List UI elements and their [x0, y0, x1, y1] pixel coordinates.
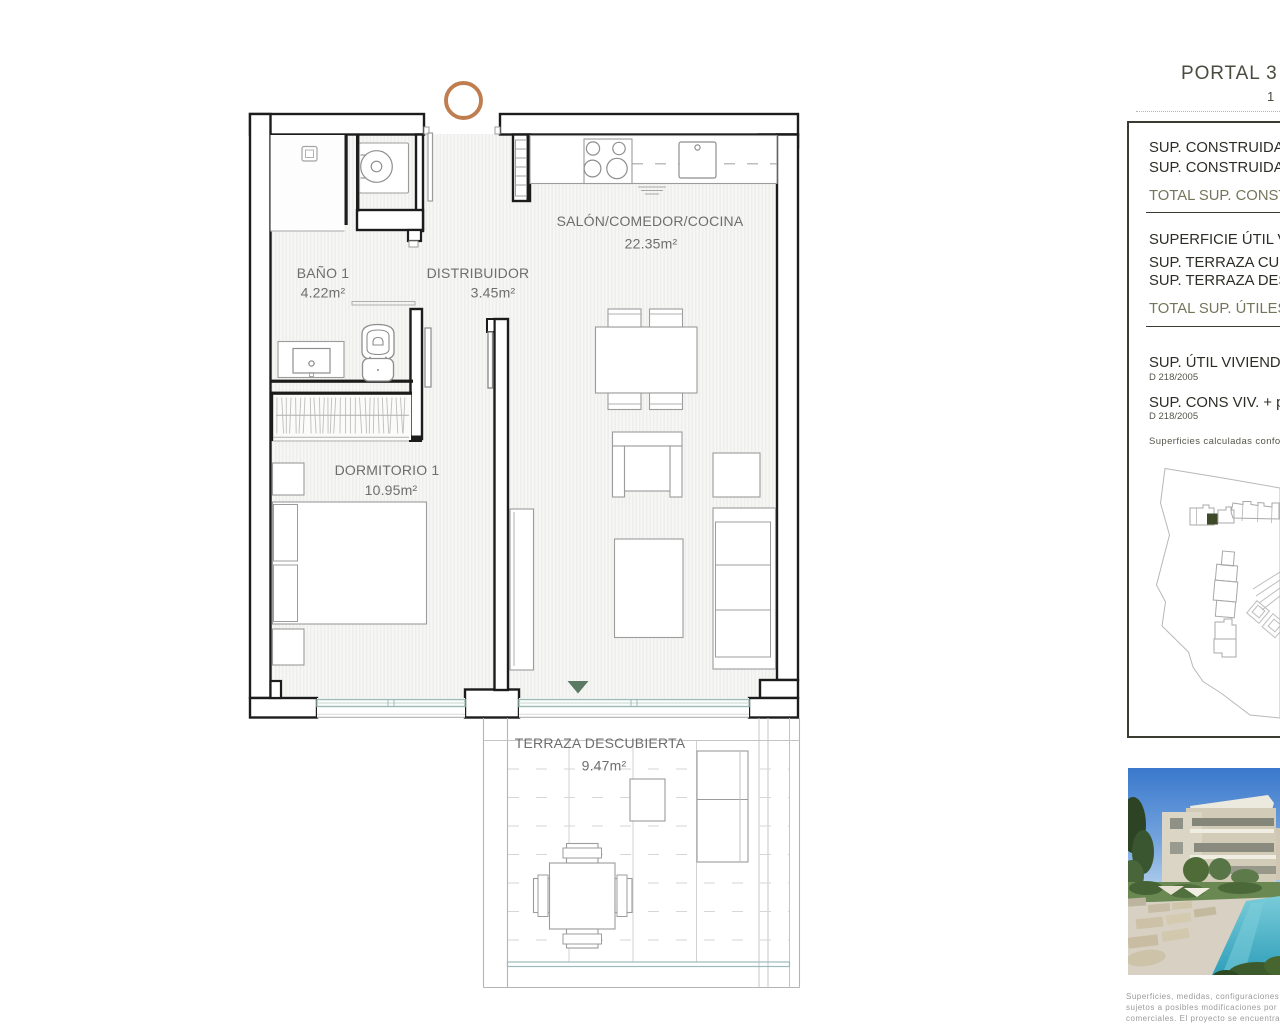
svg-text:TERRAZA DESCUBIERTA: TERRAZA DESCUBIERTA	[515, 735, 686, 751]
svg-text:22.35m²: 22.35m²	[625, 236, 678, 252]
svg-text:BAÑO 1: BAÑO 1	[297, 265, 350, 281]
svg-text:9.47m²: 9.47m²	[582, 758, 627, 774]
svg-text:SALÓN/COMEDOR/COCINA: SALÓN/COMEDOR/COCINA	[557, 213, 744, 229]
svg-text:10.95m²: 10.95m²	[365, 482, 418, 498]
svg-text:DISTRIBUIDOR: DISTRIBUIDOR	[427, 265, 530, 281]
svg-text:3.45m²: 3.45m²	[471, 285, 516, 301]
svg-text:4.22m²: 4.22m²	[301, 285, 346, 301]
svg-text:DORMITORIO 1: DORMITORIO 1	[335, 462, 440, 478]
